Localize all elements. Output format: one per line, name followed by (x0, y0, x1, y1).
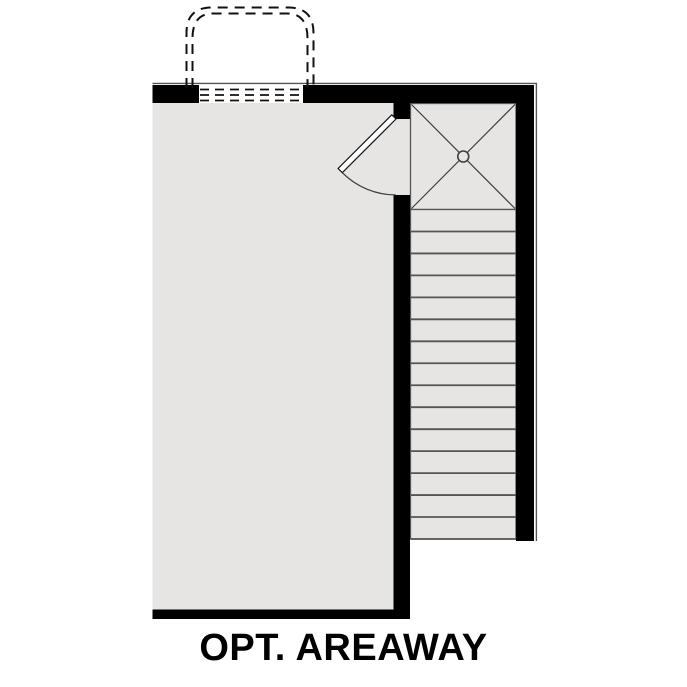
stairwell-wall-stub-above-door (394, 103, 411, 119)
bottom-wall (153, 610, 411, 620)
room-floor (153, 103, 394, 610)
window-dashed-lines (200, 90, 303, 101)
doorway-floor (394, 119, 412, 195)
floor-plan (0, 0, 687, 687)
window-well-outer-dashed-outline (187, 8, 314, 89)
floorplan-canvas: OPT. AREAWAY (0, 0, 687, 687)
stair-run (411, 210, 517, 540)
areaway-window-well (187, 8, 314, 101)
top-wall-right-segment (303, 85, 534, 103)
stairwell-wall-below-door (394, 195, 411, 619)
plan-label: OPT. AREAWAY (0, 627, 687, 670)
floor-drain-circle (458, 151, 469, 162)
window-well-inner-dashed-outline (193, 14, 308, 89)
right-wall (516, 85, 534, 541)
